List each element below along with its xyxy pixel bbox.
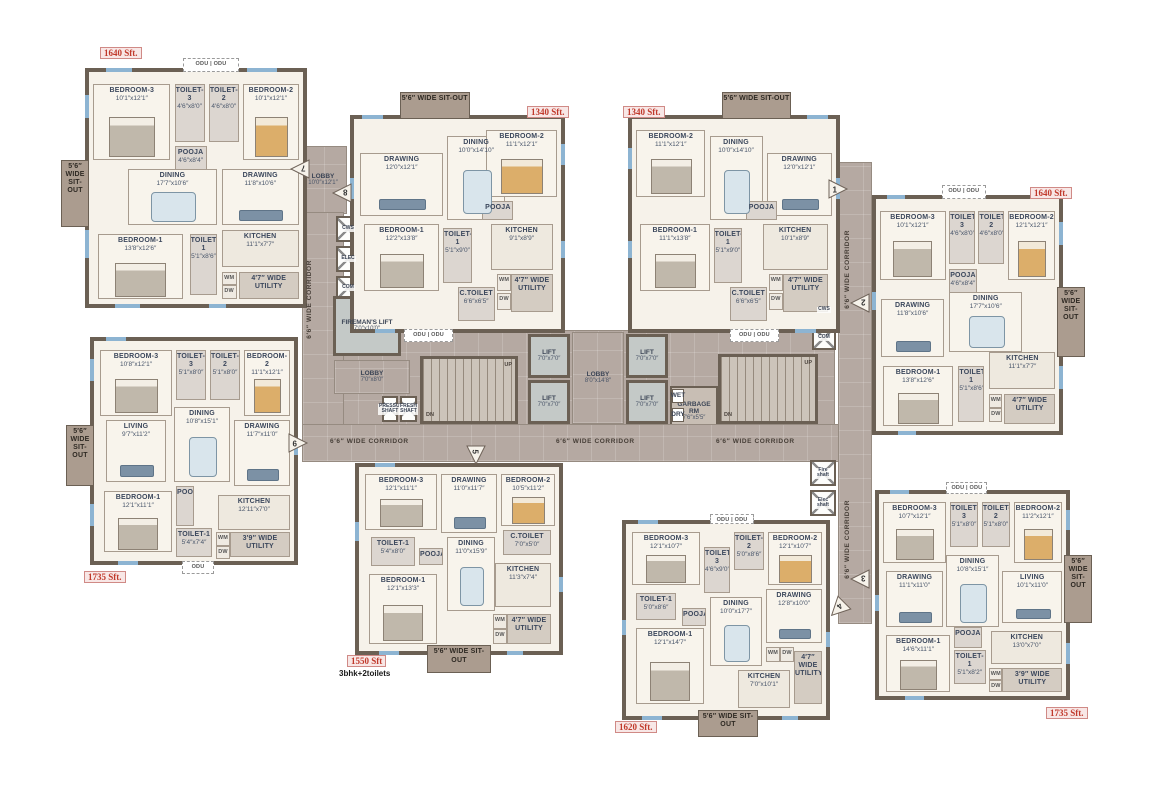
small-lobby-label: LOBBY (361, 370, 384, 377)
bed-icon (779, 555, 811, 583)
room-dims: 10′1″x12′1″ (244, 95, 298, 102)
room-bedroom-1: BEDROOM-113′8″x12′6″ (98, 234, 184, 299)
bed-icon (254, 379, 282, 413)
room-toilet-1: TOILET-15′1″x9′0″ (714, 228, 743, 283)
room-name: 5′6″ WIDE SIT-OUT (1058, 290, 1083, 322)
room-name: ODU | ODU (711, 517, 753, 523)
room-toilet-1: TOILET-15′1″x8′2″ (954, 650, 986, 684)
room-name: TOILET-1 (444, 231, 471, 247)
svg-text:2: 2 (861, 298, 866, 307)
room-5-6-wide-sit-out: 5′6″ WIDE SIT-OUT (698, 710, 758, 737)
room-odu-odu: ODU | ODU (183, 58, 239, 72)
room-name: TOILET-2 (210, 87, 238, 103)
marker-triangle-icon: 6 (286, 432, 310, 454)
marker-triangle-icon: 3 (848, 568, 872, 590)
room-toilet-1: TOILET-15′1″x9′0″ (443, 228, 472, 283)
room-name: BEDROOM-2 (1009, 214, 1055, 222)
core-lift-lobby: LOBBY8′0″x14′8″ (572, 332, 624, 424)
room-drawing: DRAWING11′8″x10′6″ (881, 299, 943, 357)
room-name: DRAWING (768, 156, 831, 164)
room-name: 5′6″ WIDE SIT-OUT (428, 648, 490, 664)
room-toilet-3: TOILET-34′6″x8′0″ (949, 211, 975, 264)
room-odu-odu: ODU | ODU (404, 329, 454, 342)
bin-wet-label: WET (671, 392, 685, 399)
marker-triangle-icon: 5 (465, 443, 487, 467)
room-dining: DINING11′0″x15′9″ (447, 537, 495, 611)
room-name: 3′9″ WIDE UTILITY (231, 535, 289, 551)
window (115, 304, 141, 308)
room-pooja: POOJA (746, 201, 777, 220)
core-lift-3: LIFT7′0″x7′0″ (626, 334, 668, 378)
shaft-elec-left-label: ELEC (340, 256, 355, 262)
room-name: 3′9″ WIDE UTILITY (1003, 671, 1061, 687)
room-dims: 11′2″x12′1″ (1015, 513, 1062, 520)
room-name: KITCHEN (764, 227, 827, 235)
window (507, 651, 523, 655)
room-name: ODU | ODU (947, 485, 986, 491)
room-name: POOJA (177, 489, 193, 497)
room-name: 5′6″ WIDE SIT-OUT (1065, 558, 1091, 590)
shaft-cws-right-label: CWS (817, 307, 831, 313)
core-stairs-right: UPDN (718, 354, 818, 424)
window (106, 337, 126, 341)
room-name: BEDROOM-2 (502, 477, 554, 485)
room-name: TOILET-1 (191, 237, 217, 253)
window (826, 632, 830, 647)
room-bedroom-1: BEDROOM-111′1″x13′8″ (640, 224, 709, 291)
room-wm: WM (216, 532, 230, 545)
room-toilet-1: TOILET-15′1″x8′6″ (190, 234, 218, 294)
room-4-7-wide-utility: 4′7″ WIDE UTILITY (507, 614, 551, 643)
room-name: BEDROOM-2 (637, 133, 704, 141)
bed-icon (646, 555, 686, 583)
bed-icon (512, 497, 544, 524)
sofa-icon (379, 199, 426, 211)
room-dims: 4′6″x8′0″ (950, 230, 974, 237)
room-name: ODU | ODU (184, 61, 238, 67)
lift-3-dims: 7′0″x7′0″ (636, 356, 659, 363)
svg-text:7: 7 (301, 164, 306, 173)
unit-bottom-right-1735: BEDROOM-310′7″x12′1″TOILET-35′1″x8′0″TOI… (875, 490, 1070, 700)
room-name: BEDROOM-1 (884, 369, 952, 377)
room-dims: 12′1″x14′7″ (637, 639, 703, 646)
room-name: KITCHEN (992, 634, 1061, 642)
room-name: DW (223, 288, 236, 294)
room-dims: 7′0″x5′0″ (504, 541, 550, 548)
room-bedroom-1: BEDROOM-112′1″x13′3″ (369, 574, 437, 644)
room-name: LIVING (1003, 574, 1061, 582)
lift-2-dims: 7′0″x7′0″ (538, 402, 561, 409)
room-name: DRAWING (882, 302, 942, 310)
room-dw: DW (780, 647, 794, 662)
dining-table-icon (724, 625, 750, 662)
room-toilet-1: TOILET-15′4″x8′0″ (371, 537, 415, 566)
room-bedroom-1: BEDROOM-112′2″x13′8″ (364, 224, 439, 291)
core-elec-shaft: Elec shaft (810, 490, 836, 516)
lift-2-label: LIFT (542, 395, 556, 402)
sofa-icon (782, 199, 819, 211)
room-bedroom-3: BEDROOM-312′1″x11′1″ (365, 474, 437, 529)
room-name: WM (217, 535, 229, 541)
room-wm: WM (497, 274, 511, 291)
room-name: DINING (448, 540, 494, 548)
dining-table-icon (460, 567, 484, 606)
window (90, 504, 94, 526)
room-dims: 11′1″x7′7″ (223, 241, 298, 248)
room-dims: 5′4″x7′4″ (177, 539, 211, 546)
room-bedroom-3: BEDROOM-310′8″x12′1″ (100, 350, 172, 416)
room-dims: 11′1″x11′0″ (887, 582, 941, 589)
room-dining: DINING17′7″x10′6″ (128, 169, 218, 225)
area-label-1550-sft: 1550 Sft (347, 655, 386, 667)
small-lobby-dims: 7′0″x8′0″ (361, 377, 384, 384)
room-bedroom-2: BEDROOM-211′1″x12′1″ (636, 130, 705, 197)
room-dims: 5′1″x8′0″ (951, 521, 977, 528)
room-name: POOJA (955, 630, 981, 638)
room-bedroom-1: BEDROOM-113′8″x12′6″ (883, 366, 953, 426)
room-name: 5′6″ WIDE SIT-OUT (401, 95, 469, 103)
room-pooja: POOJA4′6″x8′4″ (949, 269, 976, 295)
unit-left-middle-1735: BEDROOM-310′8″x12′1″TOILET-35′1″x8′0″TOI… (90, 337, 298, 565)
window (118, 561, 138, 565)
room-dims: 12′8″x10′0″ (767, 600, 821, 607)
room-dims: 11′3″x7′4″ (496, 574, 550, 581)
fire-shaft-label: Fire shaft (812, 468, 834, 479)
window (375, 463, 395, 467)
sofa-icon (247, 469, 279, 481)
stairs-right-up-label: UP (804, 360, 812, 366)
room-dims: 14′6″x11′1″ (887, 646, 949, 653)
core-stairs-left: UPDN (420, 356, 518, 424)
window (1059, 222, 1063, 245)
unit-top-center-left-1340: DRAWING12′0″x12′1″DINING10′0″x14′10″BEDR… (350, 115, 565, 333)
room-name: WM (770, 277, 782, 283)
unit-marker-3: 3 (848, 568, 872, 590)
room-drawing: DRAWING12′0″x12′1″ (360, 153, 443, 216)
room-5-6-wide-sit-out: 5′6″ WIDE SIT-OUT (400, 92, 470, 119)
room-dims: 5′1″x9′0″ (444, 247, 471, 254)
room-odu-odu: ODU | ODU (730, 329, 779, 342)
room-toilet-1: TOILET-15′4″x7′4″ (176, 528, 212, 557)
window (559, 577, 563, 592)
room-name: TOILET-1 (715, 231, 742, 247)
room-name: KITCHEN (492, 227, 552, 235)
window (622, 620, 626, 635)
window (362, 115, 383, 119)
window (561, 241, 565, 258)
room-dw: DW (989, 408, 1002, 422)
window (85, 95, 89, 118)
room-name: 4′7″ WIDE UTILITY (795, 654, 821, 678)
room-name: C.TOILET (731, 290, 766, 298)
room-dims: 4′6″x9′0″ (705, 566, 729, 573)
room-c-toilet: C.TOILET6′6″x6′5″ (730, 287, 767, 321)
corridor-label: 6′6″ WIDE CORRIDOR (306, 260, 313, 339)
shaft-cws-left-label: CWS (341, 226, 355, 232)
dining-table-icon (969, 316, 1005, 348)
marker-triangle-icon: 1 (826, 178, 850, 200)
room-name: BEDROOM-1 (887, 638, 949, 646)
room-dw: DW (989, 680, 1002, 692)
corridor-label: 6′6″ WIDE CORRIDOR (716, 438, 795, 445)
room-dims: 11′0″x15′9″ (448, 548, 494, 555)
room-toilet-2: TOILET-25′1″x8′0″ (210, 350, 240, 401)
sofa-icon (899, 612, 931, 623)
room-dims: 12′1″x10′7″ (769, 543, 821, 550)
room-5-6-wide-sit-out: 5′6″ WIDE SIT-OUT (1064, 555, 1092, 624)
room-5-6-wide-sit-out: 5′6″ WIDE SIT-OUT (1057, 287, 1084, 357)
room-dims: 12′0″x12′1″ (768, 164, 831, 171)
room-name: BEDROOM-1 (641, 227, 708, 235)
unit-marker-5: 5 (465, 443, 487, 467)
room-name: 4′7″ WIDE UTILITY (1005, 397, 1054, 413)
room-dims: 11′1″x12′1″ (487, 141, 555, 148)
room-kitchen: KITCHEN11′3″x7′4″ (495, 563, 551, 607)
room-5-6-wide-sit-out: 5′6″ WIDE SIT-OUT (427, 645, 491, 673)
room-name: C.TOILET (504, 533, 550, 541)
bed-icon (109, 117, 155, 156)
room-name: TOILET-2 (979, 214, 1003, 230)
room-bedroom-3: BEDROOM-310′7″x12′1″ (883, 502, 947, 563)
elec-shaft-label: Elec shaft (812, 498, 834, 509)
room-dw: DW (497, 293, 511, 310)
room-name: ODU (183, 564, 213, 570)
window (872, 292, 876, 311)
room-name: ODU | ODU (943, 188, 985, 194)
room-dims: 9′7″x11′2″ (107, 431, 165, 438)
room-pooja: POOJA (482, 201, 513, 220)
marker-triangle-icon: 2 (848, 292, 872, 314)
area-label-1640-sft: 1640 Sft. (100, 47, 142, 59)
sofa-icon (120, 465, 154, 477)
window (782, 716, 798, 720)
svg-text:1: 1 (833, 186, 838, 195)
room-dims: 4′6″x8′4″ (176, 157, 206, 164)
room-name: TOILET-1 (177, 531, 211, 539)
room-bedroom-1: BEDROOM-112′1″x14′7″ (636, 628, 704, 705)
unit-bottom-center-right-1620: BEDROOM-312′1″x10′7″TOILET-34′6″x9′0″TOI… (622, 520, 830, 720)
room-bedroom-3: BEDROOM-310′1″x12′1″ (93, 84, 170, 161)
core-fire-shaft: Fire shaft (810, 460, 836, 486)
room-dining: DINING10′8″x15′1″ (946, 555, 998, 628)
room-dims: 13′8″x12′6″ (99, 245, 183, 252)
area-label-1735-sft: 1735 Sft. (1046, 707, 1088, 719)
room-dw: DW (222, 285, 237, 299)
core-bin-dry: DRY (672, 408, 684, 422)
room-name: WM (498, 277, 510, 283)
room-kitchen: KITCHEN7′0″x10′1″ (738, 670, 790, 708)
room-name: DRAWING (223, 172, 298, 180)
room-dims: 12′1″x13′3″ (370, 585, 436, 592)
room-toilet-1: TOILET-15′1″x8′6″ (958, 366, 984, 422)
stairs-left-dn-label: DN (426, 412, 434, 418)
corridor-label: 6′6″ WIDE CORRIDOR (556, 438, 635, 445)
window (628, 241, 632, 258)
area-label-1735-sft: 1735 Sft. (84, 571, 126, 583)
unit-top-right-1640: BEDROOM-310′1″x12′1″TOILET-34′6″x8′0″TOI… (872, 195, 1063, 435)
area-label-1640-sft: 1640 Sft. (1030, 187, 1072, 199)
unit-marker-1: 1 (826, 178, 850, 200)
window (375, 329, 396, 333)
room-wm: WM (769, 274, 783, 291)
room-name: DW (217, 549, 229, 555)
room-pooja: POOJA (419, 548, 443, 565)
room-name: DW (781, 650, 793, 656)
lift-1-label: LIFT (542, 349, 556, 356)
room-name: DW (494, 632, 506, 638)
room-dims: 11′8″x10′6″ (882, 310, 942, 317)
unit-marker-7: 7 (288, 158, 312, 180)
bed-icon (650, 662, 690, 701)
room-name: TOILET-2 (735, 535, 763, 551)
room-odu-odu: ODU | ODU (946, 482, 987, 494)
core-bin-wet: WET (672, 389, 684, 403)
lift-4-dims: 7′0″x7′0″ (636, 402, 659, 409)
room-kitchen: KITCHEN10′1″x8′9″ (763, 224, 828, 270)
window (638, 520, 658, 524)
room-name: TOILET-3 (951, 505, 977, 521)
garbage-rm-dims: 7′6″x5′5″ (683, 415, 706, 422)
window (1059, 366, 1063, 389)
room-dims: 6′6″x6′5″ (459, 298, 494, 305)
window (561, 144, 565, 165)
room-kitchen: KITCHEN9′1″x8′9″ (491, 224, 553, 270)
room-dining: DINING10′0″x17′7″ (710, 597, 762, 666)
room-bedroom-2: BEDROOM-211′1″x12′1″ (244, 350, 290, 416)
room-kitchen: KITCHEN11′1″x7′7″ (222, 230, 299, 267)
room-dw: DW (216, 546, 230, 559)
room-name: DRAWING (442, 477, 496, 485)
room-dims: 12′0″x12′1″ (361, 164, 442, 171)
room-name: KITCHEN (990, 355, 1054, 363)
room-name: DINING (711, 600, 761, 608)
core-small-lobby: LOBBY7′0″x8′0″ (334, 360, 410, 394)
room-dims: 5′1″x8′6″ (959, 385, 983, 392)
room-dims: 11′8″x10′6″ (223, 180, 298, 187)
room-name: DINING (711, 139, 762, 147)
room-name: BEDROOM-2 (769, 535, 821, 543)
marker-triangle-icon: 7 (288, 158, 312, 180)
room-name: DW (990, 683, 1001, 689)
room-living: LIVING9′7″x11′2″ (106, 420, 166, 482)
room-name: DRAWING (767, 592, 821, 600)
room-toilet-1: TOILET-15′0″x8′6″ (636, 593, 676, 620)
room-dims: 13′0″x7′0″ (992, 642, 1061, 649)
window (898, 431, 916, 435)
room-wm: WM (989, 668, 1002, 680)
svg-text:8: 8 (343, 188, 348, 197)
room-toilet-3: TOILET-34′6″x8′0″ (175, 84, 205, 142)
room-dims: 10′0″x14′10″ (448, 147, 504, 154)
area-label-1620-sft: 1620 Sft. (615, 721, 657, 733)
room-name: BEDROOM-2 (245, 353, 289, 369)
room-dims: 12′2″x13′8″ (365, 235, 438, 242)
sofa-icon (896, 341, 932, 352)
room-name: 5′6″ WIDE SIT-OUT (67, 428, 93, 460)
room-name: KITCHEN (496, 566, 550, 574)
window (875, 595, 879, 611)
room-dining: DINING10′8″x15′1″ (174, 407, 230, 482)
room-odu-odu: ODU | ODU (942, 185, 986, 199)
room-drawing: DRAWING11′7″x11′0″ (234, 420, 290, 486)
room-c-toilet: C.TOILET7′0″x5′0″ (503, 530, 551, 556)
room-bedroom-1: BEDROOM-114′6″x11′1″ (886, 635, 950, 692)
room-name: WM (990, 397, 1001, 403)
room-kitchen: KITCHEN12′11″x7′0″ (218, 495, 290, 530)
firemans-lift-label: FIREMAN'S LIFT (341, 319, 392, 326)
room-name: TOILET-3 (950, 214, 974, 230)
room-wm: WM (222, 272, 237, 286)
room-odu: ODU (182, 561, 214, 574)
room-name: BEDROOM-1 (99, 237, 183, 245)
bed-icon (898, 393, 939, 424)
room-5-6-wide-sit-out: 5′6″ WIDE SIT-OUT (722, 92, 791, 119)
room-bedroom-3: BEDROOM-312′1″x10′7″ (632, 532, 700, 586)
room-wm: WM (766, 647, 780, 662)
dining-table-icon (960, 584, 986, 623)
room-bedroom-2: BEDROOM-212′1″x12′1″ (1008, 211, 1056, 281)
window (106, 68, 132, 72)
room-name: TOILET-1 (372, 540, 414, 548)
room-dims: 10′0″x17′7″ (711, 608, 761, 615)
room-name: 4′7″ WIDE UTILITY (512, 277, 551, 293)
room-dims: 13′8″x12′6″ (884, 377, 952, 384)
room-dims: 5′0″x8′6″ (637, 604, 675, 611)
room-dims: 12′1″x11′1″ (366, 485, 436, 492)
room-dims: 17′7″x10′6″ (129, 180, 217, 187)
window (1066, 643, 1070, 663)
room-3-9-wide-utility: 3′9″ WIDE UTILITY (230, 532, 290, 556)
room-5-6-wide-sit-out: 5′6″ WIDE SIT-OUT (61, 160, 89, 227)
room-toilet-3: TOILET-35′1″x8′0″ (950, 502, 978, 546)
room-toilet-2: TOILET-25′0″x8′6″ (734, 532, 764, 570)
lift-3-label: LIFT (640, 349, 654, 356)
window (807, 115, 827, 119)
room-bedroom-2: BEDROOM-212′1″x10′7″ (768, 532, 822, 586)
room-name: WM (223, 275, 236, 281)
window (628, 148, 632, 169)
room-dims: 4′6″x8′0″ (210, 103, 238, 110)
window (887, 195, 905, 199)
room-dims: 9′1″x8′9″ (492, 235, 552, 242)
room-pooja: POOJA (682, 608, 706, 625)
room-name: BEDROOM-3 (884, 505, 946, 513)
room-name: WM (990, 671, 1001, 677)
room-4-7-wide-utility: 4′7″ WIDE UTILITY (1004, 394, 1055, 424)
bed-icon (893, 241, 932, 277)
room-name: BEDROOM-2 (487, 133, 555, 141)
room-wm: WM (989, 394, 1002, 408)
window (795, 329, 815, 333)
room-name: BEDROOM-1 (365, 227, 438, 235)
sofa-icon (1016, 609, 1050, 619)
room-pooja: POOJA (954, 627, 982, 647)
room-name: KITCHEN (739, 673, 789, 681)
room-dims: 5′1″x8′6″ (191, 253, 217, 260)
room-c-toilet: C.TOILET6′6″x6′5″ (458, 287, 495, 321)
room-dims: 10′0″x14′10″ (711, 147, 762, 154)
lift-lobby-label: LOBBY (587, 371, 610, 378)
room-dims: 11′0″x11′7″ (442, 485, 496, 492)
window (209, 304, 226, 308)
room-dw: DW (493, 629, 507, 644)
room-name: TOILET-1 (637, 596, 675, 604)
bed-icon (900, 660, 938, 689)
dining-table-icon (189, 437, 217, 477)
room-pooja: POOJA (176, 486, 194, 526)
window (85, 230, 89, 258)
room-name: TOILET-2 (983, 505, 1009, 521)
